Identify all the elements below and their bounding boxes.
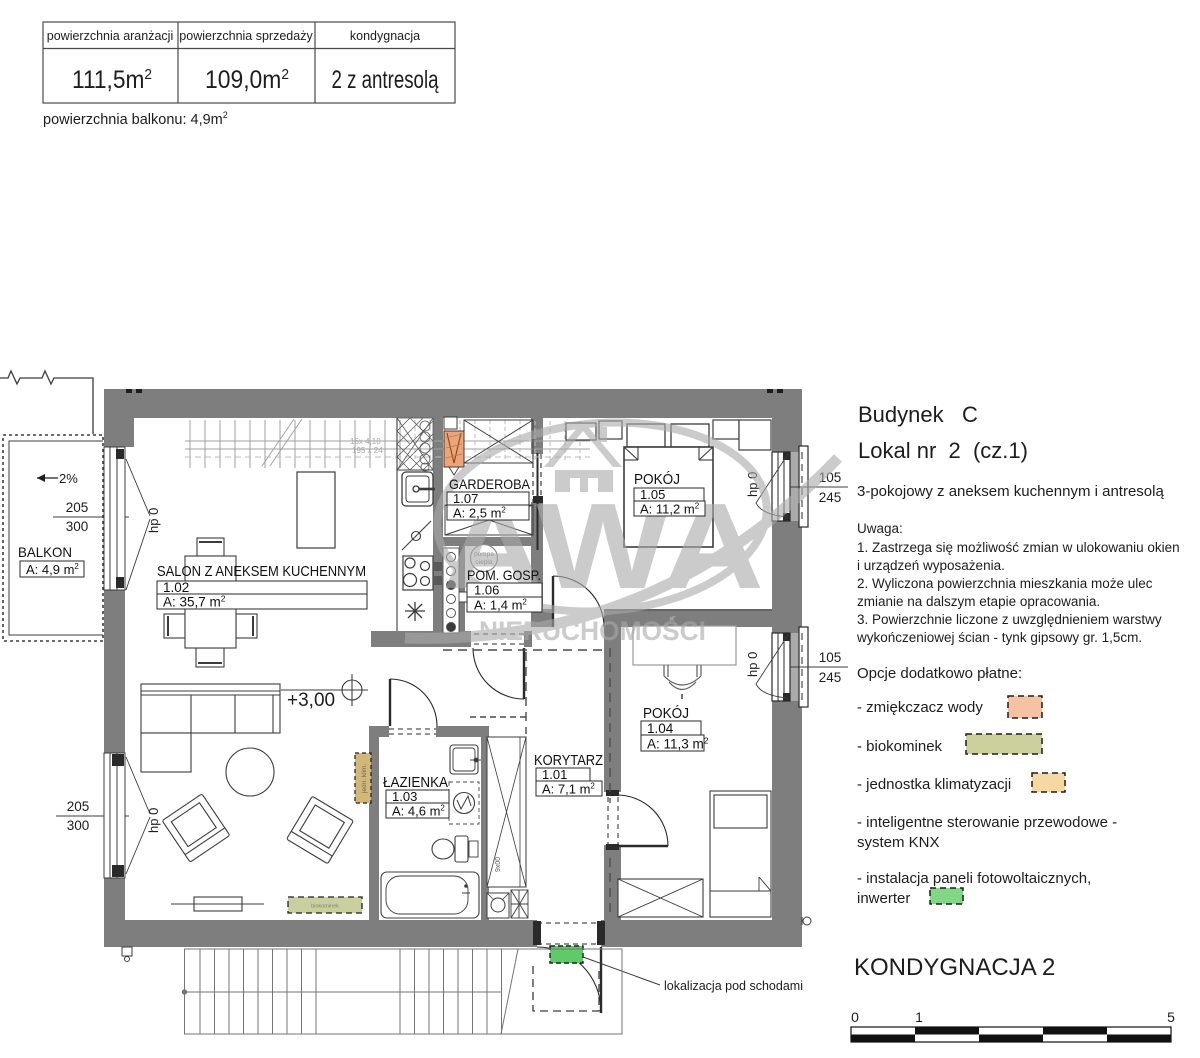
svg-text:Budynek C: Budynek C: [858, 402, 978, 427]
svg-text:i urządzeń wyposażenia.: i urządzeń wyposażenia.: [857, 558, 1005, 573]
svg-text:SALON Z ANEKSEM KUCHENNYM: SALON Z ANEKSEM KUCHENNYM: [157, 563, 366, 580]
svg-text:POKÓJ: POKÓJ: [643, 705, 689, 722]
svg-text:A: 2,5 m2: A: 2,5 m2: [453, 506, 506, 521]
svg-text:A: 11,2 m2: A: 11,2 m2: [640, 502, 700, 517]
svg-text:1.04: 1.04: [647, 721, 674, 736]
svg-text:NIERUCHOMOŚCI: NIERUCHOMOŚCI: [479, 615, 706, 646]
svg-text:195 x 24: 195 x 24: [352, 446, 383, 455]
svg-text:lokalizacja pod schodami: lokalizacja pod schodami: [664, 979, 803, 993]
svg-text:A: 35,7 m2: A: 35,7 m2: [163, 594, 226, 610]
svg-text:- inteligentne sterowanie prze: - inteligentne sterowanie przewodowe -: [857, 814, 1117, 831]
svg-text:- jednostka klimatyzacji: - jednostka klimatyzacji: [857, 776, 1011, 793]
svg-text:300: 300: [66, 519, 89, 534]
svg-text:Lokal nr 2 (cz.1): Lokal nr 2 (cz.1): [858, 438, 1028, 463]
svg-text:A: 11,3 m2: A: 11,3 m2: [647, 736, 709, 752]
svg-text:- zmiękczacz wody: - zmiękczacz wody: [857, 699, 983, 716]
svg-text:1.06: 1.06: [474, 583, 499, 598]
svg-text:hp 0: hp 0: [745, 652, 760, 677]
svg-text:205: 205: [66, 500, 89, 515]
svg-text:GARDEROBA: GARDEROBA: [449, 476, 531, 492]
svg-text:3. Powierzchnie liczone z uwzg: 3. Powierzchnie liczone z uwzględnieniem…: [857, 612, 1162, 627]
svg-text:POM. GOSP.: POM. GOSP.: [467, 567, 541, 583]
svg-text:2. Wyliczona powierzchnia mies: 2. Wyliczona powierzchnia mieszkania moż…: [857, 576, 1153, 591]
svg-text:zmianie na dalszym etapie opra: zmianie na dalszym etapie opracowania.: [857, 594, 1100, 609]
svg-text:105: 105: [819, 650, 842, 665]
svg-text:1.02: 1.02: [163, 580, 189, 595]
svg-text:biokominek: biokominek: [311, 904, 339, 910]
svg-text:1: 1: [915, 1009, 923, 1025]
svg-text:300: 300: [67, 818, 90, 833]
svg-text:powierzchnia sprzedaży: powierzchnia sprzedaży: [179, 29, 313, 43]
svg-text:- instalacja paneli fotowoltai: - instalacja paneli fotowoltaicznych,: [857, 870, 1091, 887]
svg-text:1.01: 1.01: [542, 767, 567, 782]
svg-text:2%: 2%: [59, 471, 78, 486]
svg-text:Opcje dodatkowo płatne:: Opcje dodatkowo płatne:: [857, 665, 1022, 682]
svg-text:POKÓJ: POKÓJ: [634, 471, 680, 488]
svg-text:kondygnacja: kondygnacja: [350, 29, 420, 43]
svg-text:3-pokojowy z aneksem kuchennym: 3-pokojowy z aneksem kuchennym i antreso…: [857, 483, 1164, 500]
svg-text:Uwaga:: Uwaga:: [857, 521, 903, 536]
svg-text:111,5m2: 111,5m2: [72, 66, 152, 94]
svg-text:A: 4,9 m2: A: 4,9 m2: [26, 562, 79, 577]
svg-text:BALKON: BALKON: [18, 544, 72, 560]
svg-text:1.03: 1.03: [392, 789, 417, 804]
svg-text:109,0m2: 109,0m2: [205, 66, 289, 94]
svg-text:A: 1,4 m2: A: 1,4 m2: [474, 598, 527, 613]
svg-text:KONDYGNACJA 2: KONDYGNACJA 2: [854, 954, 1055, 981]
svg-text:jedn. klim.: jedn. klim.: [361, 764, 368, 794]
svg-text:powierzchnia aranżacji: powierzchnia aranżacji: [47, 29, 173, 43]
svg-text:5: 5: [1167, 1009, 1175, 1025]
svg-text:- biokominek: - biokominek: [857, 738, 943, 755]
svg-text:A: 7,1 m2: A: 7,1 m2: [542, 782, 595, 797]
svg-text:1.05: 1.05: [640, 487, 665, 502]
svg-text:9x00: 9x00: [495, 857, 502, 872]
svg-text:16x 4,10: 16x 4,10: [350, 437, 381, 446]
svg-text:powierzchnia balkonu: 4,9m2: powierzchnia balkonu: 4,9m2: [43, 110, 228, 128]
svg-text:2 z antresolą: 2 z antresolą: [332, 66, 439, 94]
svg-text:0: 0: [851, 1009, 859, 1025]
svg-text:245: 245: [819, 490, 842, 505]
svg-text:wykończeniowej ścian - tynk gi: wykończeniowej ścian - tynk gipsowy gr. …: [856, 630, 1142, 645]
svg-text:+3,00: +3,00: [287, 690, 335, 711]
svg-text:system KNX: system KNX: [857, 834, 940, 851]
svg-text:205: 205: [67, 799, 90, 814]
svg-text:A: 4,6 m2: A: 4,6 m2: [392, 804, 445, 819]
svg-text:1. Zastrzega się możliwość zmi: 1. Zastrzega się możliwość zmian w uloko…: [857, 540, 1180, 555]
svg-text:1.07: 1.07: [453, 491, 478, 506]
svg-text:245: 245: [819, 670, 842, 685]
svg-text:inwerter: inwerter: [857, 890, 910, 907]
